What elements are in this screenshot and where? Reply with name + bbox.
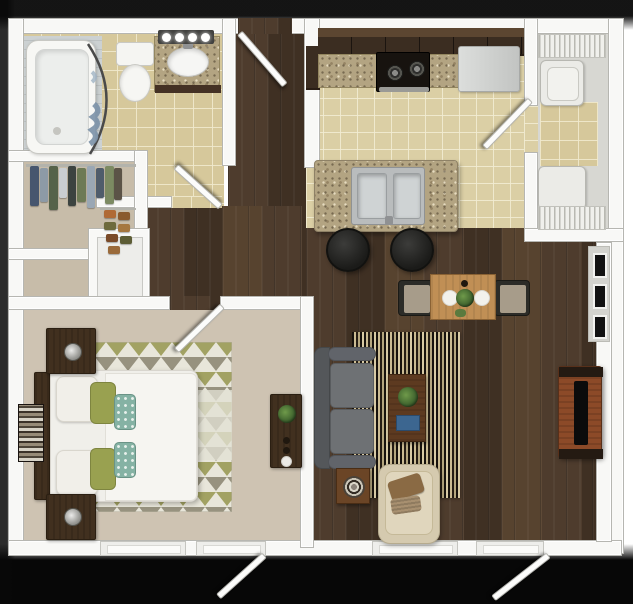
chair-cushion <box>500 285 526 313</box>
decor-plate <box>343 476 365 498</box>
kitchen-island <box>314 160 458 232</box>
vanity-sink <box>167 47 209 77</box>
sink-basin-right <box>393 173 421 219</box>
shoe-pair <box>106 234 118 242</box>
hanging-cloth <box>77 168 86 202</box>
hanging-cloth <box>49 166 58 210</box>
toilet-tank <box>116 42 154 66</box>
shoe-pair <box>120 236 132 244</box>
bar-stool-2 <box>390 228 434 272</box>
side-table <box>336 468 370 504</box>
bathtub <box>26 40 96 154</box>
centerpiece-plant <box>456 289 474 307</box>
nightstand-bottom <box>46 494 96 540</box>
kitchen-counter-left <box>318 54 378 88</box>
toilet-bowl <box>119 64 151 102</box>
stove-handle <box>379 87 429 92</box>
kitchen-counter-right <box>428 54 462 88</box>
bed-pillow-green-2 <box>90 448 116 490</box>
coffee-table-plant <box>398 387 418 407</box>
hanging-cloth <box>96 168 104 198</box>
bar-stool-1 <box>326 228 370 272</box>
nightstand-lamp <box>64 343 82 361</box>
light-bulb-2 <box>175 33 184 42</box>
sofa-cushion-2 <box>330 409 374 454</box>
shoe-pair <box>118 212 130 220</box>
refrigerator <box>458 46 520 92</box>
washer <box>540 60 584 106</box>
bed-duvet <box>105 373 197 501</box>
console-cap-top <box>559 367 603 377</box>
vanity-lights <box>158 30 214 44</box>
nightstand-top <box>46 328 96 374</box>
bed-pillow-green-1 <box>90 382 116 424</box>
table-item <box>461 280 468 287</box>
door-patio-bedroom <box>216 553 267 600</box>
sofa-cushion-1 <box>330 363 374 408</box>
tv-console <box>558 366 602 458</box>
dining-table <box>430 274 496 320</box>
bed-pillow-teal-2 <box>114 442 136 478</box>
sofa-arm-bottom <box>328 455 376 469</box>
plate-right <box>474 290 490 306</box>
vanity-front-edge <box>155 85 221 93</box>
sofa-arm-top <box>328 347 376 361</box>
desk-dish <box>281 456 292 467</box>
hanging-cloth <box>59 168 67 198</box>
laundry-shelf-bottom <box>538 206 606 230</box>
armchair <box>378 464 440 544</box>
washer-lid <box>547 67 579 101</box>
stove-burner-2 <box>409 61 425 77</box>
shoe-pair <box>118 224 130 232</box>
table-sprig <box>455 309 466 317</box>
hanging-cloth <box>30 166 39 206</box>
floor-plan <box>0 0 633 604</box>
desk-knob-2 <box>283 447 290 454</box>
hanging-cloth <box>40 168 48 202</box>
sink-basin-left <box>357 173 387 219</box>
shoe-pair <box>108 246 120 254</box>
stove <box>376 52 430 92</box>
laundry-shelf-top <box>538 34 606 58</box>
chair-cushion <box>404 285 430 313</box>
shoe-pair <box>104 222 116 230</box>
hanging-cloth <box>87 166 95 208</box>
bedroom-desk <box>270 394 302 468</box>
door-bedroom <box>174 304 225 353</box>
island-sink <box>351 167 425 225</box>
wall-shelf-books <box>18 404 44 462</box>
desk-plant <box>278 405 296 423</box>
hanging-cloth <box>114 168 122 200</box>
light-bulb-3 <box>188 33 197 42</box>
coffee-table <box>388 374 426 442</box>
door-entry <box>237 31 288 88</box>
closet-clothes <box>26 162 136 254</box>
console-cap-bottom <box>559 449 603 459</box>
door-bathroom <box>174 164 223 209</box>
sofa-back <box>314 347 330 469</box>
stove-burner-1 <box>387 65 403 81</box>
light-bulb-1 <box>162 33 171 42</box>
nightstand-lamp <box>64 508 82 526</box>
shoe-pair <box>104 210 116 218</box>
object-layer <box>0 0 633 604</box>
light-bulb-4 <box>201 33 210 42</box>
island-faucet <box>385 216 393 225</box>
dryer <box>538 166 586 210</box>
dining-chair-right <box>494 280 530 316</box>
hanging-cloth <box>105 166 114 204</box>
tub-basin <box>35 49 89 145</box>
bed-pillow-teal-1 <box>114 394 136 430</box>
door-patio-living <box>491 553 550 602</box>
door-laundry <box>482 98 533 150</box>
dining-chair-left <box>398 280 434 316</box>
desk-knob-1 <box>283 437 290 444</box>
hanging-cloth <box>68 166 76 206</box>
cabinet-top-band <box>318 28 524 37</box>
tub-drain <box>53 127 61 135</box>
coffee-table-book <box>396 415 420 431</box>
tv <box>574 381 588 445</box>
closet-rod <box>26 164 136 167</box>
vanity-counter <box>154 36 220 92</box>
sofa <box>314 347 376 469</box>
